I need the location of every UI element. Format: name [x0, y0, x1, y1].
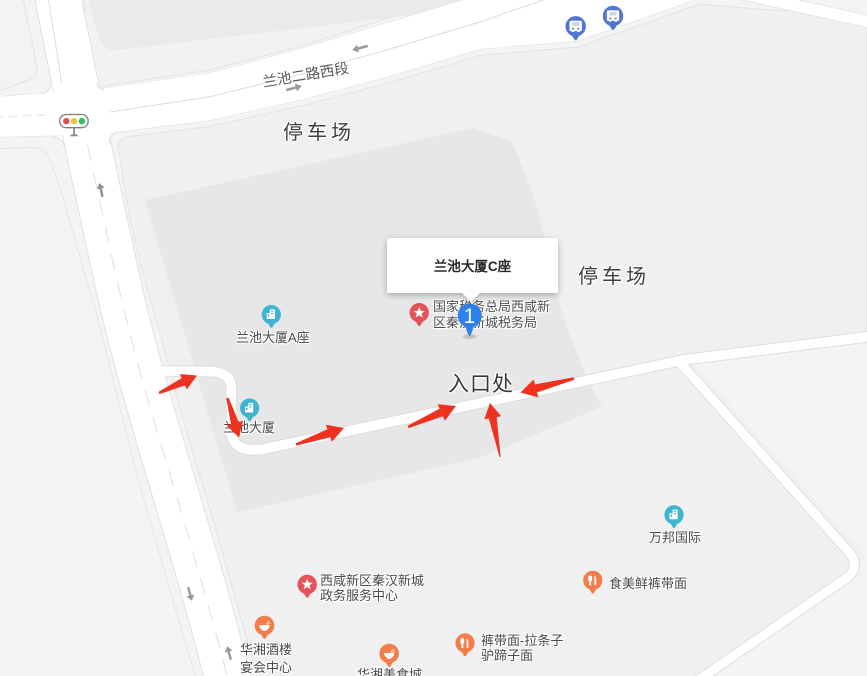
svg-text:1: 1 — [464, 305, 476, 328]
